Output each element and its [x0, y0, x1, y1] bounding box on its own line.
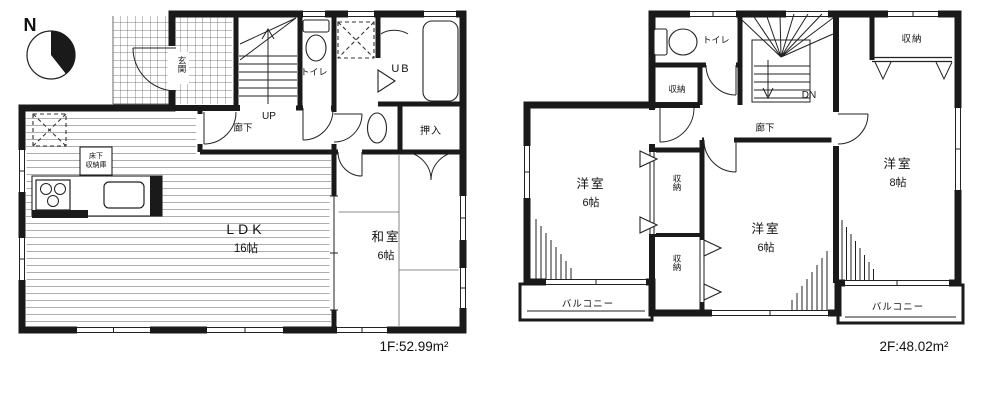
- floor-plan-page: N: [0, 0, 1000, 403]
- room-right-label: 洋室: [883, 156, 912, 171]
- floor1-area-label: 1F:52.99m²: [379, 339, 449, 354]
- room-right-size-label: 8帖: [889, 176, 906, 189]
- ldk-size-label: 16帖: [234, 241, 258, 255]
- hallway-label-2f: 廊下: [755, 122, 774, 134]
- balcony-right: バルコニー: [838, 285, 963, 323]
- entrance-porch-tiles: [113, 16, 170, 104]
- kitchen-counter: [32, 176, 162, 218]
- toilet-label-2f: トイレ: [702, 35, 729, 45]
- washbasin: [368, 113, 387, 143]
- stairs-up-label: UP: [262, 111, 276, 122]
- washitsu-label: 和室: [371, 229, 400, 244]
- floor2-area-label: 2F:48.02m²: [879, 339, 949, 354]
- balcony-left-label: バルコニー: [562, 299, 614, 310]
- balcony-left: バルコニー: [520, 284, 652, 320]
- storage-top-right-label: 収納: [901, 33, 922, 45]
- north-compass: N: [24, 15, 76, 79]
- floor2-plan: バルコニー バルコニー: [520, 10, 963, 355]
- underfloor-storage-label1: 床下: [89, 151, 103, 160]
- room-mid-size-label: 6帖: [757, 241, 774, 254]
- stairs-down-label: DN: [802, 90, 816, 101]
- compass-needle-icon: [51, 31, 75, 74]
- hallway-label-1f: 廊下: [233, 122, 252, 134]
- ldk-label: LDK: [226, 221, 265, 237]
- room-left-label: 洋室: [576, 176, 605, 191]
- floor1-plan: 床下 収納庫 玄関 UP 廊下 トイレ UB 押入 LDK 16帖 和室 6帖 …: [18, 10, 468, 355]
- washitsu-size-label: 6帖: [377, 249, 394, 262]
- storage-hall-label: 収納: [668, 84, 685, 94]
- compass-north-label: N: [24, 15, 37, 35]
- storage-mid-lower-label: 収納: [672, 253, 682, 271]
- balcony-right-label: バルコニー: [872, 302, 924, 313]
- bath-label: UB: [391, 63, 410, 75]
- room-left-size-label: 6帖: [582, 196, 599, 209]
- storage-mid-upper-label: 収納: [672, 173, 682, 192]
- room-mid-label: 洋室: [751, 221, 780, 236]
- underfloor-storage: 床下 収納庫: [80, 147, 112, 175]
- toilet-label-1f: トイレ: [300, 67, 327, 77]
- oshiire-label: 押入: [420, 124, 442, 137]
- genkan-label: 玄関: [177, 55, 187, 74]
- toilet-fixture-2f: [654, 29, 697, 55]
- underfloor-storage-label2: 収納庫: [86, 160, 107, 169]
